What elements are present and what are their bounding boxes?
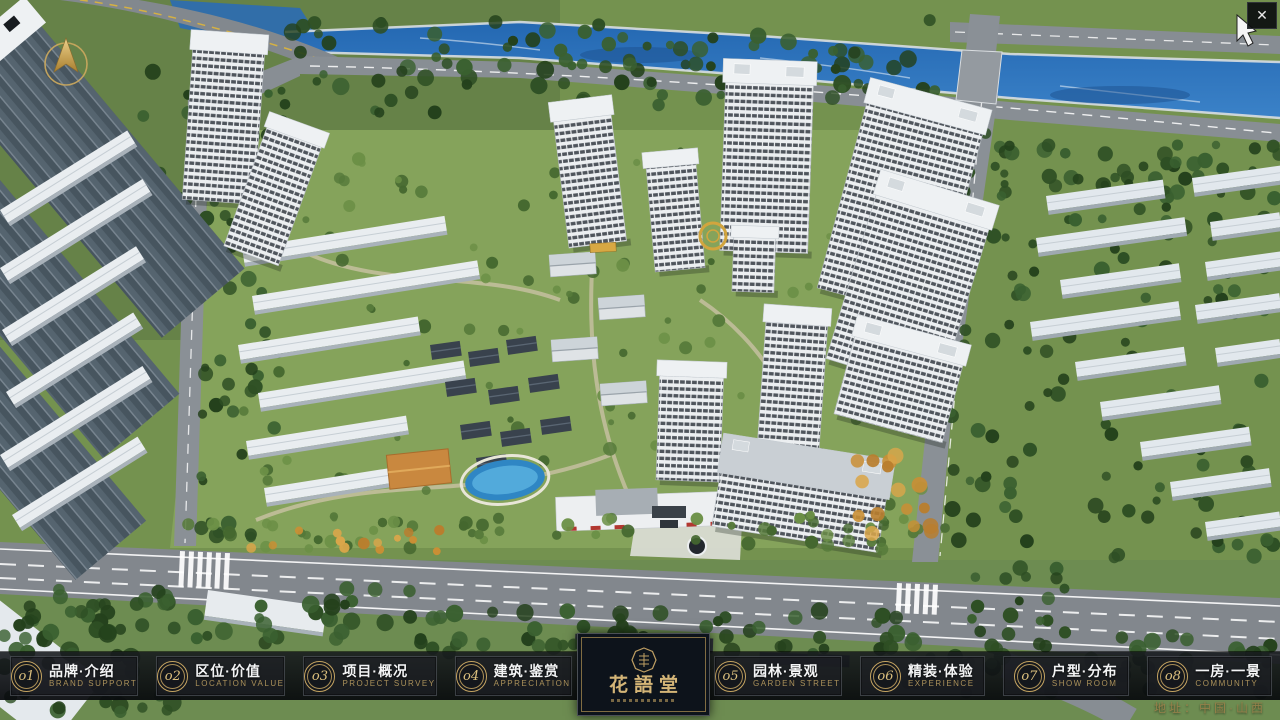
number-badge: o6 [870, 661, 901, 692]
nav-item-interior[interactable]: o6 精装·体验 EXPERIENCE [860, 656, 986, 696]
number-badge: o4 [456, 661, 487, 692]
nav-group-left: o1 品牌·介绍 BRAND SUPPORT o2 区位·价值 LOCATION… [10, 656, 568, 696]
nav-title: 园林·景观 [753, 663, 819, 679]
nav-item-floorplan[interactable]: o7 户型·分布 SHOW ROOM [1003, 656, 1129, 696]
nav-title: 项目·概况 [342, 663, 408, 679]
nav-item-garden[interactable]: o5 园林·景观 GARDEN STREET [714, 656, 842, 696]
number-badge: o3 [304, 661, 335, 692]
nav-title: 精装·体验 [908, 663, 974, 679]
seal-emblem-icon [631, 647, 657, 673]
nav-title: 品牌·介绍 [49, 663, 115, 679]
aerial-site-map [0, 0, 1280, 720]
logo-plaque[interactable]: 花語堂 [577, 633, 710, 716]
number-badge: o7 [1014, 661, 1045, 692]
nav-subtitle: GARDEN STREET [753, 679, 841, 689]
nav-subtitle: APPRECIATION [494, 679, 571, 689]
nav-subtitle: COMMUNITY [1195, 679, 1258, 689]
nav-title: 户型·分布 [1052, 663, 1118, 679]
nav-title: 建筑·鉴赏 [494, 663, 560, 679]
address-text: 地址：中国·山西 [1154, 699, 1266, 716]
nav-subtitle: EXPERIENCE [908, 679, 975, 689]
nav-subtitle: BRAND SUPPORT [49, 679, 137, 689]
logo-title: 花語堂 [603, 675, 684, 696]
nav-item-brand[interactable]: o1 品牌·介绍 BRAND SUPPORT [10, 656, 138, 696]
nav-item-location[interactable]: o2 区位·价值 LOCATION VALUE [156, 656, 285, 696]
nav-item-community[interactable]: o8 一房·一景 COMMUNITY [1147, 656, 1273, 696]
number-badge: o8 [1157, 661, 1188, 692]
nav-item-architecture[interactable]: o4 建筑·鉴赏 APPRECIATION [455, 656, 572, 696]
nav-title: 一房·一景 [1195, 663, 1261, 679]
logo-subtext-line [611, 699, 677, 702]
number-badge: o5 [715, 661, 746, 692]
presentation-window: o1 品牌·介绍 BRAND SUPPORT o2 区位·价值 LOCATION… [0, 0, 1280, 720]
nav-title: 区位·价值 [195, 663, 261, 679]
nav-subtitle: PROJECT SURVEY [342, 679, 435, 689]
number-badge: o1 [11, 661, 42, 692]
nav-subtitle: SHOW ROOM [1052, 679, 1118, 689]
number-badge: o2 [157, 661, 188, 692]
nav-item-project[interactable]: o3 项目·概况 PROJECT SURVEY [303, 656, 436, 696]
nav-group-right: o5 园林·景观 GARDEN STREET o6 精装·体验 EXPERIEN… [714, 656, 1272, 696]
close-button[interactable]: ✕ [1247, 2, 1277, 29]
clubhouse-orange [386, 449, 451, 489]
nav-subtitle: LOCATION VALUE [195, 679, 284, 689]
